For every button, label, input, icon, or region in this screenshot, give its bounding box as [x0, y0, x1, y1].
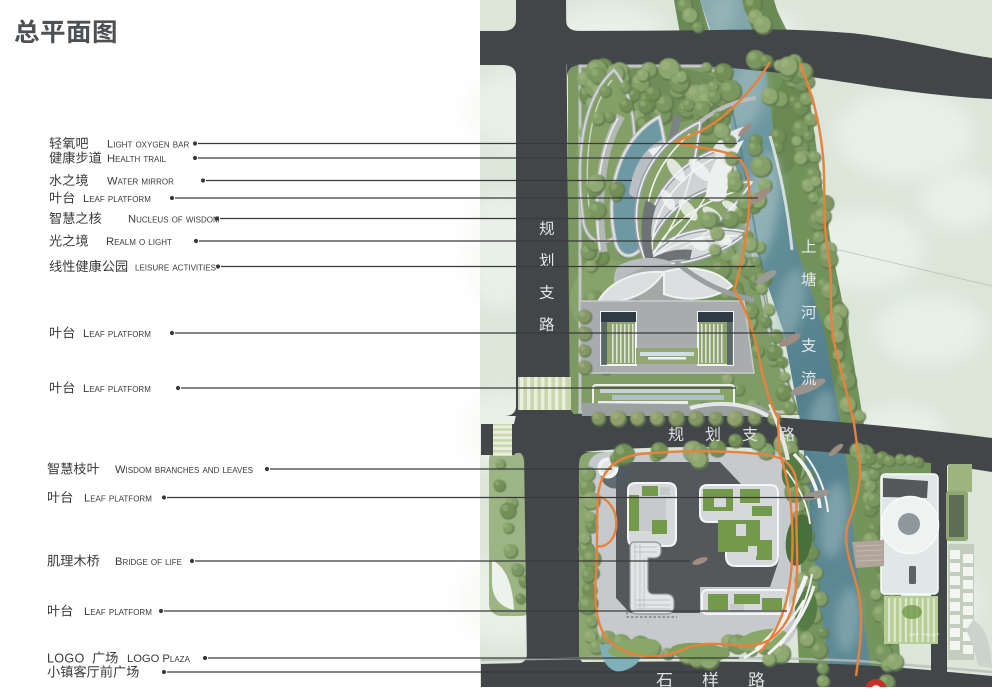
svg-text:Realm o light: Realm o light: [106, 236, 172, 248]
svg-text:Leaf platform: Leaf platform: [83, 193, 151, 205]
svg-text:leisure activities: leisure activities: [135, 262, 216, 274]
svg-text:Nucleus of wisdom: Nucleus of wisdom: [128, 214, 220, 226]
svg-text:Leaf platform: Leaf platform: [83, 383, 151, 395]
svg-text:Light oxygen bar: Light oxygen bar: [107, 139, 189, 151]
svg-text:LOGO: LOGO: [47, 652, 85, 666]
svg-text:LOGO Plaza: LOGO Plaza: [127, 653, 191, 665]
svg-text:Leaf platform: Leaf platform: [83, 328, 151, 340]
svg-text:Bridge of life: Bridge of life: [115, 556, 182, 568]
svg-text:Leaf platform: Leaf platform: [84, 493, 152, 505]
svg-text:OXY VALLEY: OXY VALLEY: [909, 632, 940, 637]
svg-text:Leaf platform: Leaf platform: [84, 606, 152, 618]
svg-text:Water mirror: Water mirror: [107, 176, 174, 188]
svg-text:Health trail: Health trail: [107, 153, 167, 165]
svg-text:Wisdom branches and leaves: Wisdom branches and leaves: [115, 464, 253, 476]
